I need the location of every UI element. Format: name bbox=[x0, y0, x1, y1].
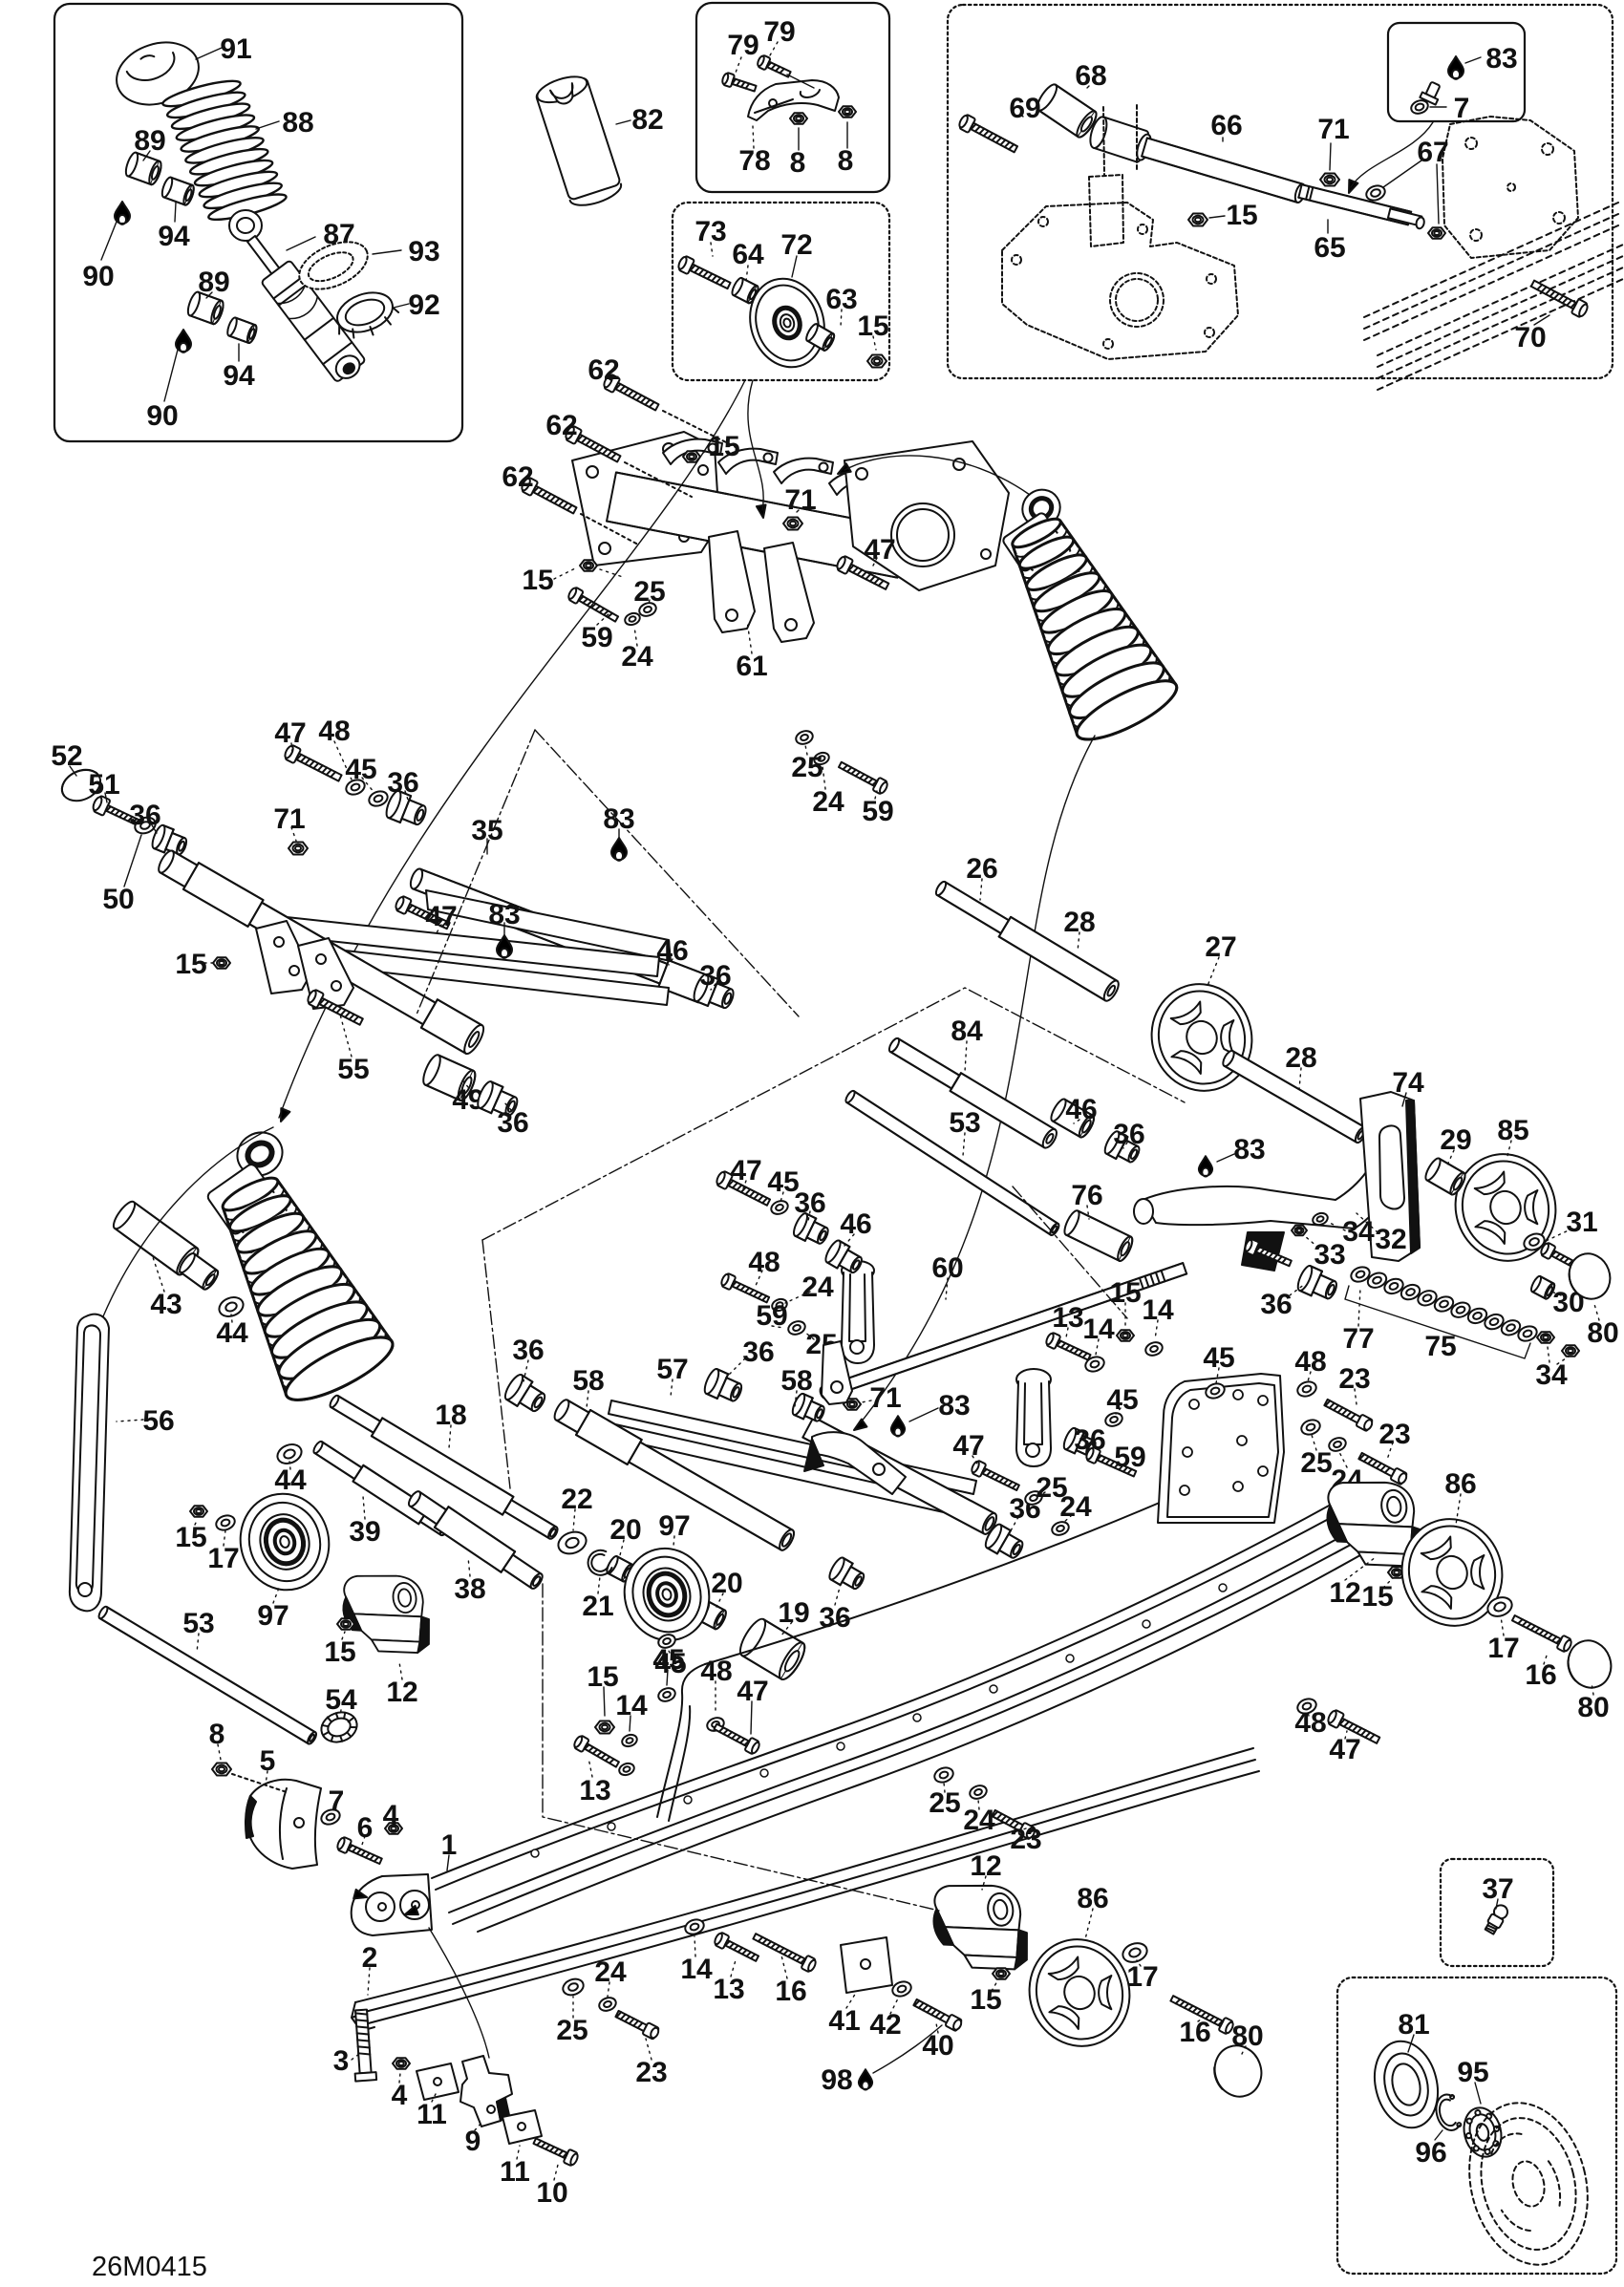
svg-text:36: 36 bbox=[129, 800, 160, 831]
svg-text:70: 70 bbox=[1514, 322, 1546, 353]
svg-text:41: 41 bbox=[828, 2005, 860, 2037]
svg-text:79: 79 bbox=[763, 16, 795, 48]
svg-text:62: 62 bbox=[588, 354, 619, 386]
svg-text:4: 4 bbox=[392, 2080, 408, 2111]
svg-text:77: 77 bbox=[1342, 1323, 1374, 1355]
svg-text:21: 21 bbox=[582, 1591, 613, 1622]
svg-text:71: 71 bbox=[1317, 114, 1349, 145]
svg-text:80: 80 bbox=[1231, 2020, 1263, 2052]
svg-text:4: 4 bbox=[383, 1800, 399, 1831]
svg-text:59: 59 bbox=[581, 622, 612, 653]
svg-text:15: 15 bbox=[970, 1984, 1001, 2016]
svg-text:27: 27 bbox=[1205, 931, 1236, 963]
svg-text:89: 89 bbox=[198, 267, 229, 298]
svg-text:43: 43 bbox=[150, 1289, 182, 1320]
svg-text:33: 33 bbox=[1314, 1239, 1345, 1271]
svg-text:92: 92 bbox=[408, 289, 439, 321]
svg-text:95: 95 bbox=[1457, 2057, 1488, 2088]
svg-text:62: 62 bbox=[502, 461, 533, 493]
svg-text:15: 15 bbox=[587, 1661, 618, 1693]
svg-text:13: 13 bbox=[713, 1974, 744, 2005]
svg-text:42: 42 bbox=[869, 2009, 901, 2041]
svg-text:74: 74 bbox=[1392, 1067, 1424, 1099]
svg-text:73: 73 bbox=[694, 216, 726, 247]
svg-text:20: 20 bbox=[711, 1568, 742, 1599]
svg-text:71: 71 bbox=[869, 1382, 901, 1414]
svg-text:25: 25 bbox=[633, 576, 665, 608]
svg-text:91: 91 bbox=[220, 33, 251, 65]
svg-text:32: 32 bbox=[1375, 1224, 1406, 1255]
svg-text:8: 8 bbox=[790, 147, 806, 179]
svg-text:62: 62 bbox=[545, 410, 577, 441]
svg-text:46: 46 bbox=[840, 1208, 871, 1240]
svg-text:80: 80 bbox=[1577, 1692, 1609, 1723]
svg-text:69: 69 bbox=[1009, 93, 1040, 124]
svg-text:11: 11 bbox=[500, 2156, 530, 2188]
svg-text:3: 3 bbox=[333, 2045, 350, 2077]
svg-text:16: 16 bbox=[1525, 1659, 1556, 1691]
svg-text:12: 12 bbox=[1329, 1577, 1360, 1609]
svg-text:13: 13 bbox=[579, 1775, 610, 1806]
svg-text:34: 34 bbox=[1342, 1216, 1375, 1248]
svg-text:19: 19 bbox=[778, 1597, 809, 1629]
svg-text:16: 16 bbox=[775, 1976, 806, 2007]
svg-text:23: 23 bbox=[1378, 1419, 1410, 1450]
svg-text:8: 8 bbox=[209, 1719, 225, 1750]
svg-text:22: 22 bbox=[561, 1484, 592, 1515]
svg-text:79: 79 bbox=[727, 30, 759, 61]
svg-text:51: 51 bbox=[88, 769, 119, 801]
svg-text:71: 71 bbox=[273, 803, 305, 835]
svg-text:75: 75 bbox=[1424, 1331, 1456, 1362]
svg-text:25: 25 bbox=[791, 752, 823, 783]
svg-text:48: 48 bbox=[748, 1247, 780, 1278]
svg-text:25: 25 bbox=[1036, 1472, 1067, 1504]
svg-text:89: 89 bbox=[134, 125, 165, 157]
svg-text:59: 59 bbox=[862, 796, 893, 827]
svg-text:15: 15 bbox=[324, 1636, 355, 1668]
svg-text:15: 15 bbox=[175, 949, 206, 980]
svg-text:14: 14 bbox=[680, 1954, 713, 1985]
svg-text:59: 59 bbox=[1114, 1442, 1145, 1473]
svg-text:17: 17 bbox=[1487, 1633, 1519, 1664]
svg-text:88: 88 bbox=[282, 107, 313, 139]
svg-text:6: 6 bbox=[357, 1812, 374, 1844]
svg-text:47: 47 bbox=[737, 1676, 768, 1707]
svg-text:15: 15 bbox=[175, 1522, 206, 1553]
svg-text:36: 36 bbox=[497, 1107, 528, 1139]
svg-text:47: 47 bbox=[864, 534, 895, 566]
svg-text:7: 7 bbox=[1454, 93, 1470, 124]
svg-text:97: 97 bbox=[257, 1600, 288, 1632]
svg-text:17: 17 bbox=[1126, 1961, 1158, 1993]
svg-text:45: 45 bbox=[1106, 1384, 1138, 1416]
svg-text:24: 24 bbox=[812, 786, 844, 818]
svg-text:61: 61 bbox=[736, 651, 767, 682]
svg-text:26M0415: 26M0415 bbox=[92, 2252, 207, 2282]
svg-text:36: 36 bbox=[699, 960, 731, 992]
svg-text:25: 25 bbox=[1300, 1447, 1332, 1479]
svg-text:85: 85 bbox=[1497, 1115, 1528, 1146]
svg-text:78: 78 bbox=[738, 145, 770, 177]
svg-text:46: 46 bbox=[656, 935, 688, 967]
svg-text:11: 11 bbox=[417, 2099, 447, 2130]
svg-text:83: 83 bbox=[1485, 43, 1517, 75]
svg-text:63: 63 bbox=[825, 284, 857, 315]
svg-text:15: 15 bbox=[857, 310, 888, 342]
svg-text:8: 8 bbox=[838, 145, 854, 177]
svg-text:71: 71 bbox=[784, 484, 816, 516]
svg-text:45: 45 bbox=[652, 1644, 684, 1676]
svg-text:15: 15 bbox=[708, 431, 739, 462]
svg-text:31: 31 bbox=[1566, 1207, 1597, 1238]
svg-text:36: 36 bbox=[1113, 1119, 1144, 1150]
svg-text:29: 29 bbox=[1440, 1124, 1471, 1156]
svg-text:34: 34 bbox=[1535, 1359, 1568, 1391]
svg-text:93: 93 bbox=[408, 236, 439, 267]
svg-text:12: 12 bbox=[386, 1677, 417, 1708]
svg-text:15: 15 bbox=[1361, 1581, 1393, 1613]
svg-text:82: 82 bbox=[631, 104, 663, 136]
svg-text:96: 96 bbox=[1415, 2137, 1446, 2169]
svg-text:16: 16 bbox=[1179, 2017, 1210, 2048]
svg-text:40: 40 bbox=[922, 2030, 953, 2062]
svg-text:7: 7 bbox=[329, 1785, 345, 1817]
svg-text:36: 36 bbox=[1260, 1289, 1292, 1320]
svg-text:15: 15 bbox=[1226, 200, 1257, 231]
svg-text:23: 23 bbox=[635, 2057, 667, 2088]
svg-text:56: 56 bbox=[142, 1405, 174, 1437]
svg-text:83: 83 bbox=[938, 1390, 970, 1421]
svg-text:68: 68 bbox=[1075, 60, 1106, 92]
svg-text:46: 46 bbox=[1065, 1094, 1097, 1125]
svg-text:15: 15 bbox=[522, 565, 553, 596]
svg-text:72: 72 bbox=[780, 229, 812, 261]
svg-text:47: 47 bbox=[952, 1430, 984, 1462]
svg-text:65: 65 bbox=[1314, 232, 1345, 264]
svg-text:14: 14 bbox=[615, 1690, 648, 1721]
svg-text:17: 17 bbox=[207, 1543, 239, 1574]
svg-text:10: 10 bbox=[536, 2177, 567, 2209]
svg-text:36: 36 bbox=[819, 1602, 850, 1634]
svg-text:39: 39 bbox=[349, 1516, 380, 1548]
svg-text:36: 36 bbox=[794, 1187, 825, 1219]
svg-text:55: 55 bbox=[337, 1054, 369, 1085]
svg-text:52: 52 bbox=[51, 740, 82, 772]
svg-text:45: 45 bbox=[345, 754, 376, 785]
svg-text:90: 90 bbox=[146, 400, 178, 432]
svg-text:36: 36 bbox=[742, 1336, 774, 1368]
svg-text:64: 64 bbox=[732, 239, 764, 270]
svg-text:36: 36 bbox=[387, 767, 418, 799]
svg-text:98: 98 bbox=[821, 2064, 852, 2096]
svg-text:48: 48 bbox=[1294, 1707, 1326, 1739]
svg-text:20: 20 bbox=[609, 1514, 641, 1546]
svg-text:25: 25 bbox=[556, 2015, 588, 2046]
svg-text:94: 94 bbox=[158, 221, 190, 252]
svg-text:94: 94 bbox=[223, 360, 255, 392]
svg-text:9: 9 bbox=[465, 2126, 481, 2157]
svg-text:66: 66 bbox=[1210, 110, 1242, 141]
svg-text:24: 24 bbox=[594, 1956, 627, 1988]
svg-text:80: 80 bbox=[1587, 1317, 1618, 1349]
svg-text:59: 59 bbox=[756, 1300, 787, 1332]
svg-text:83: 83 bbox=[1233, 1134, 1265, 1165]
svg-text:90: 90 bbox=[82, 261, 114, 292]
svg-text:24: 24 bbox=[801, 1272, 834, 1303]
svg-text:47: 47 bbox=[274, 717, 306, 749]
svg-text:50: 50 bbox=[102, 884, 134, 915]
svg-text:38: 38 bbox=[454, 1573, 485, 1605]
